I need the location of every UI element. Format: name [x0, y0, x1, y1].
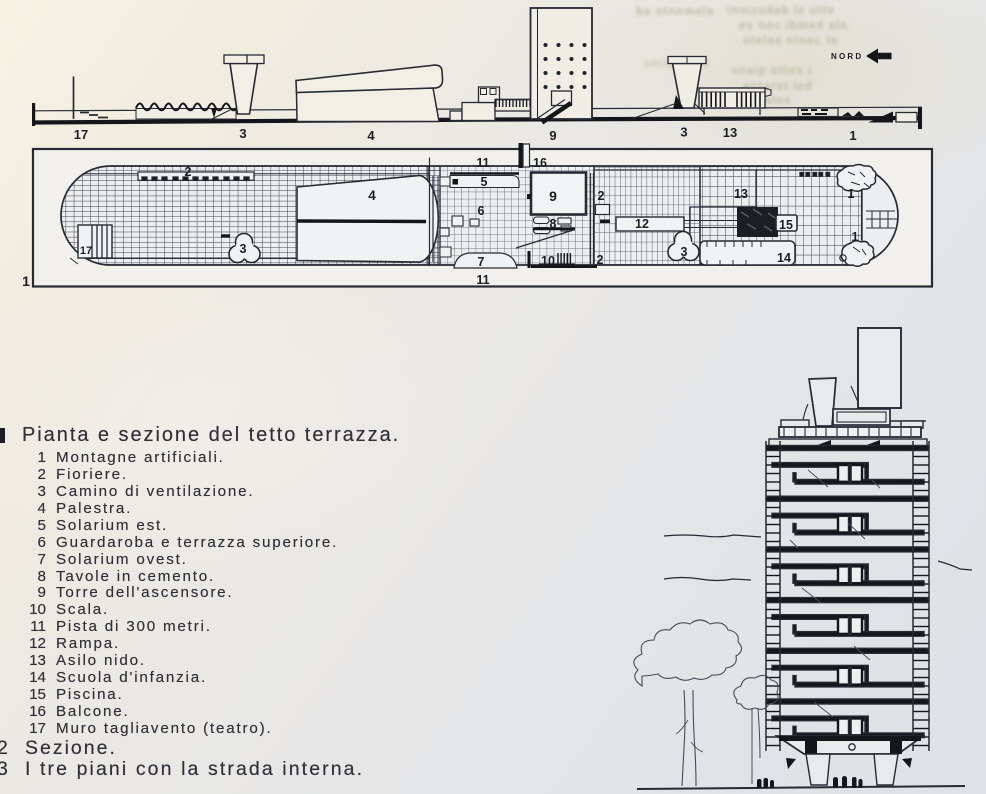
svg-text:inoizudab le otte: inoizudab le otte	[727, 5, 835, 17]
svg-text:2: 2	[598, 189, 605, 203]
svg-text:7: 7	[478, 255, 485, 269]
svg-text:11: 11	[476, 273, 489, 287]
svg-text:es noc ibmed aln: es noc ibmed aln	[739, 20, 848, 32]
svg-text:1: 1	[848, 187, 855, 201]
svg-text:4: 4	[367, 128, 375, 143]
svg-text:4: 4	[368, 188, 376, 203]
svg-text:17: 17	[80, 245, 92, 257]
svg-text:9: 9	[549, 188, 557, 204]
svg-text:11: 11	[476, 156, 489, 170]
svg-text:12: 12	[635, 217, 649, 231]
svg-text:1: 1	[22, 273, 30, 289]
svg-text:16: 16	[533, 156, 547, 170]
svg-text:15: 15	[779, 218, 793, 232]
svg-text:3: 3	[239, 126, 246, 141]
svg-text:2: 2	[185, 165, 192, 179]
svg-text:1: 1	[849, 128, 856, 143]
svg-text:9: 9	[549, 128, 556, 143]
svg-text:1: 1	[852, 230, 859, 244]
svg-text:3: 3	[240, 242, 247, 256]
svg-text:onaip ottos i: onaip ottos i	[731, 65, 812, 77]
svg-text:otelas otnec la: otelas otnec la	[743, 35, 838, 47]
svg-text:5: 5	[481, 175, 488, 189]
svg-text:3: 3	[680, 125, 687, 140]
svg-text:ba otnemala: ba otnemala	[636, 6, 714, 18]
svg-text:2: 2	[597, 253, 604, 267]
svg-text:13: 13	[734, 187, 748, 201]
svg-text:17: 17	[74, 127, 88, 142]
svg-text:13: 13	[723, 125, 737, 140]
svg-text:10: 10	[541, 254, 555, 268]
svg-text:3: 3	[681, 245, 688, 259]
svg-text:6: 6	[478, 204, 485, 218]
svg-text:NORD: NORD	[831, 52, 863, 61]
svg-text:14: 14	[777, 251, 791, 265]
svg-text:8: 8	[550, 217, 557, 231]
